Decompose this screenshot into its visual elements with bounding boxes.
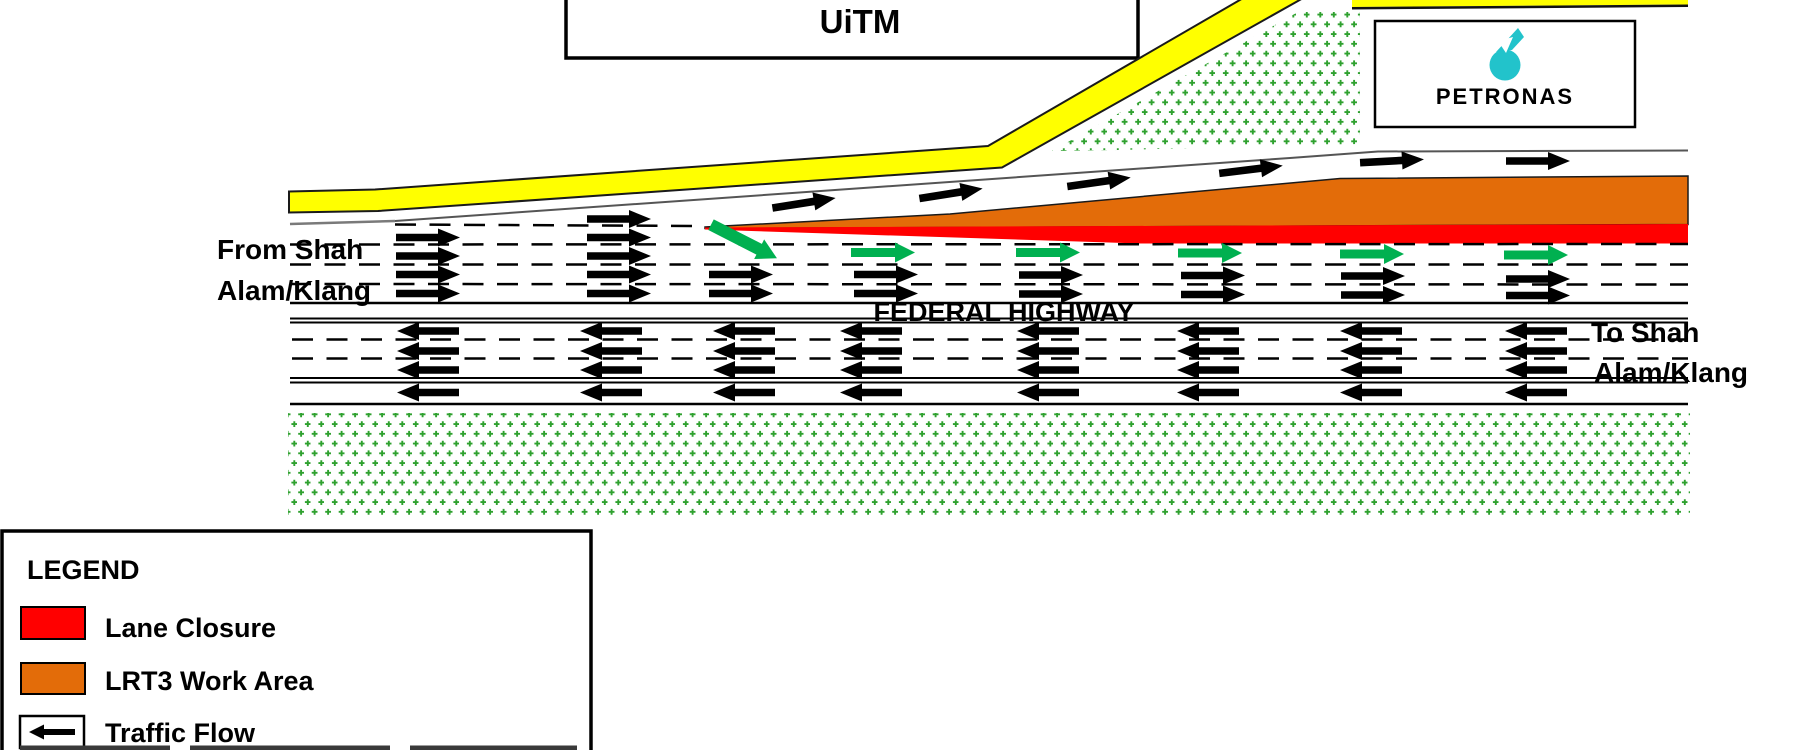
legend-title: LEGEND [27, 555, 140, 585]
petronas-station: PETRONAS [1375, 21, 1635, 127]
vegetation-strip-bottom [288, 413, 1690, 518]
westbound-arrow [713, 384, 775, 402]
from-shah-label-line1: From Shah [217, 234, 363, 265]
westbound-arrow [397, 361, 459, 379]
from-shah-label-line2: Alam/Klang [217, 275, 371, 306]
eastbound-arrow [396, 266, 460, 284]
westbound-arrow [580, 361, 642, 379]
legend: LEGEND Lane Closure LRT3 Work Area Traff… [2, 531, 591, 750]
federal-highway-closure-diagram: UiTM From [0, 0, 1793, 750]
westbound-arrow [1017, 361, 1079, 379]
westbound-arrow [1340, 322, 1402, 340]
westbound-arrow [1505, 322, 1567, 340]
eastbound-lane-line-2 [290, 244, 1688, 245]
westbound-arrow [840, 384, 902, 402]
westbound-arrow [1340, 361, 1402, 379]
westbound-arrow [1177, 384, 1239, 402]
legend-label-lane-closure: Lane Closure [105, 613, 276, 643]
ramp-arrow [1360, 150, 1425, 171]
eastbound-arrow [1019, 266, 1083, 284]
westbound-arrow [1177, 322, 1239, 340]
westbound-arrow [1505, 384, 1567, 402]
westbound-arrow [1017, 384, 1079, 402]
westbound-arrow [580, 384, 642, 402]
to-shah-label-line1: To Shah [1591, 317, 1699, 348]
westbound-arrow [713, 322, 775, 340]
eastbound-arrow [709, 285, 773, 303]
westbound-arrow [1340, 384, 1402, 402]
eastbound-arrow [1181, 267, 1245, 285]
westbound-traffic-arrows [397, 322, 1567, 402]
legend-swatch-lrt3-work-area [21, 663, 85, 694]
eastbound-arrow [396, 285, 460, 303]
legend-label-traffic-flow: Traffic Flow [105, 718, 256, 748]
legend-label-lrt3-work-area: LRT3 Work Area [105, 666, 315, 696]
westbound-arrow [397, 322, 459, 340]
eastbound-arrow [709, 266, 773, 284]
green-open-lane-arrow [1016, 243, 1080, 263]
eastbound-arrow [587, 266, 651, 284]
westbound-arrow [713, 361, 775, 379]
eastbound-arrow [396, 247, 460, 265]
eastbound-arrow [854, 266, 918, 284]
legend-cutoff-row [20, 746, 577, 750]
uitm-label: UiTM [820, 3, 901, 40]
eastbound-arrow [1181, 286, 1245, 304]
westbound-arrow [580, 322, 642, 340]
uitm-building: UiTM [566, 0, 1138, 58]
green-open-lane-arrow [1504, 245, 1568, 265]
eastbound-lane-line-1 [395, 225, 703, 227]
eastbound-arrow [1341, 286, 1405, 304]
traffic-management-diagram: UiTM From [0, 0, 1793, 750]
eastbound-lane-line-4 [290, 284, 1688, 285]
ramp-arrow [1506, 152, 1570, 170]
eastbound-top-edge [290, 221, 395, 224]
legend-swatch-lane-closure [21, 607, 85, 639]
westbound-arrow [840, 361, 902, 379]
eastbound-arrow [1341, 267, 1405, 285]
petronas-label: PETRONAS [1436, 84, 1574, 109]
federal-highway-label: FEDERAL HIGHWAY [873, 297, 1134, 327]
eastbound-arrow [587, 285, 651, 303]
westbound-arrow [1177, 361, 1239, 379]
lrt3-work-area [705, 176, 1688, 229]
eastbound-arrow [587, 247, 651, 265]
to-shah-label-line2: Alam/Klang [1594, 357, 1748, 388]
green-open-lane-arrow [1340, 244, 1404, 264]
westbound-arrow [397, 384, 459, 402]
westbound-arrow [1505, 361, 1567, 379]
green-open-lane-arrow [1178, 243, 1242, 263]
